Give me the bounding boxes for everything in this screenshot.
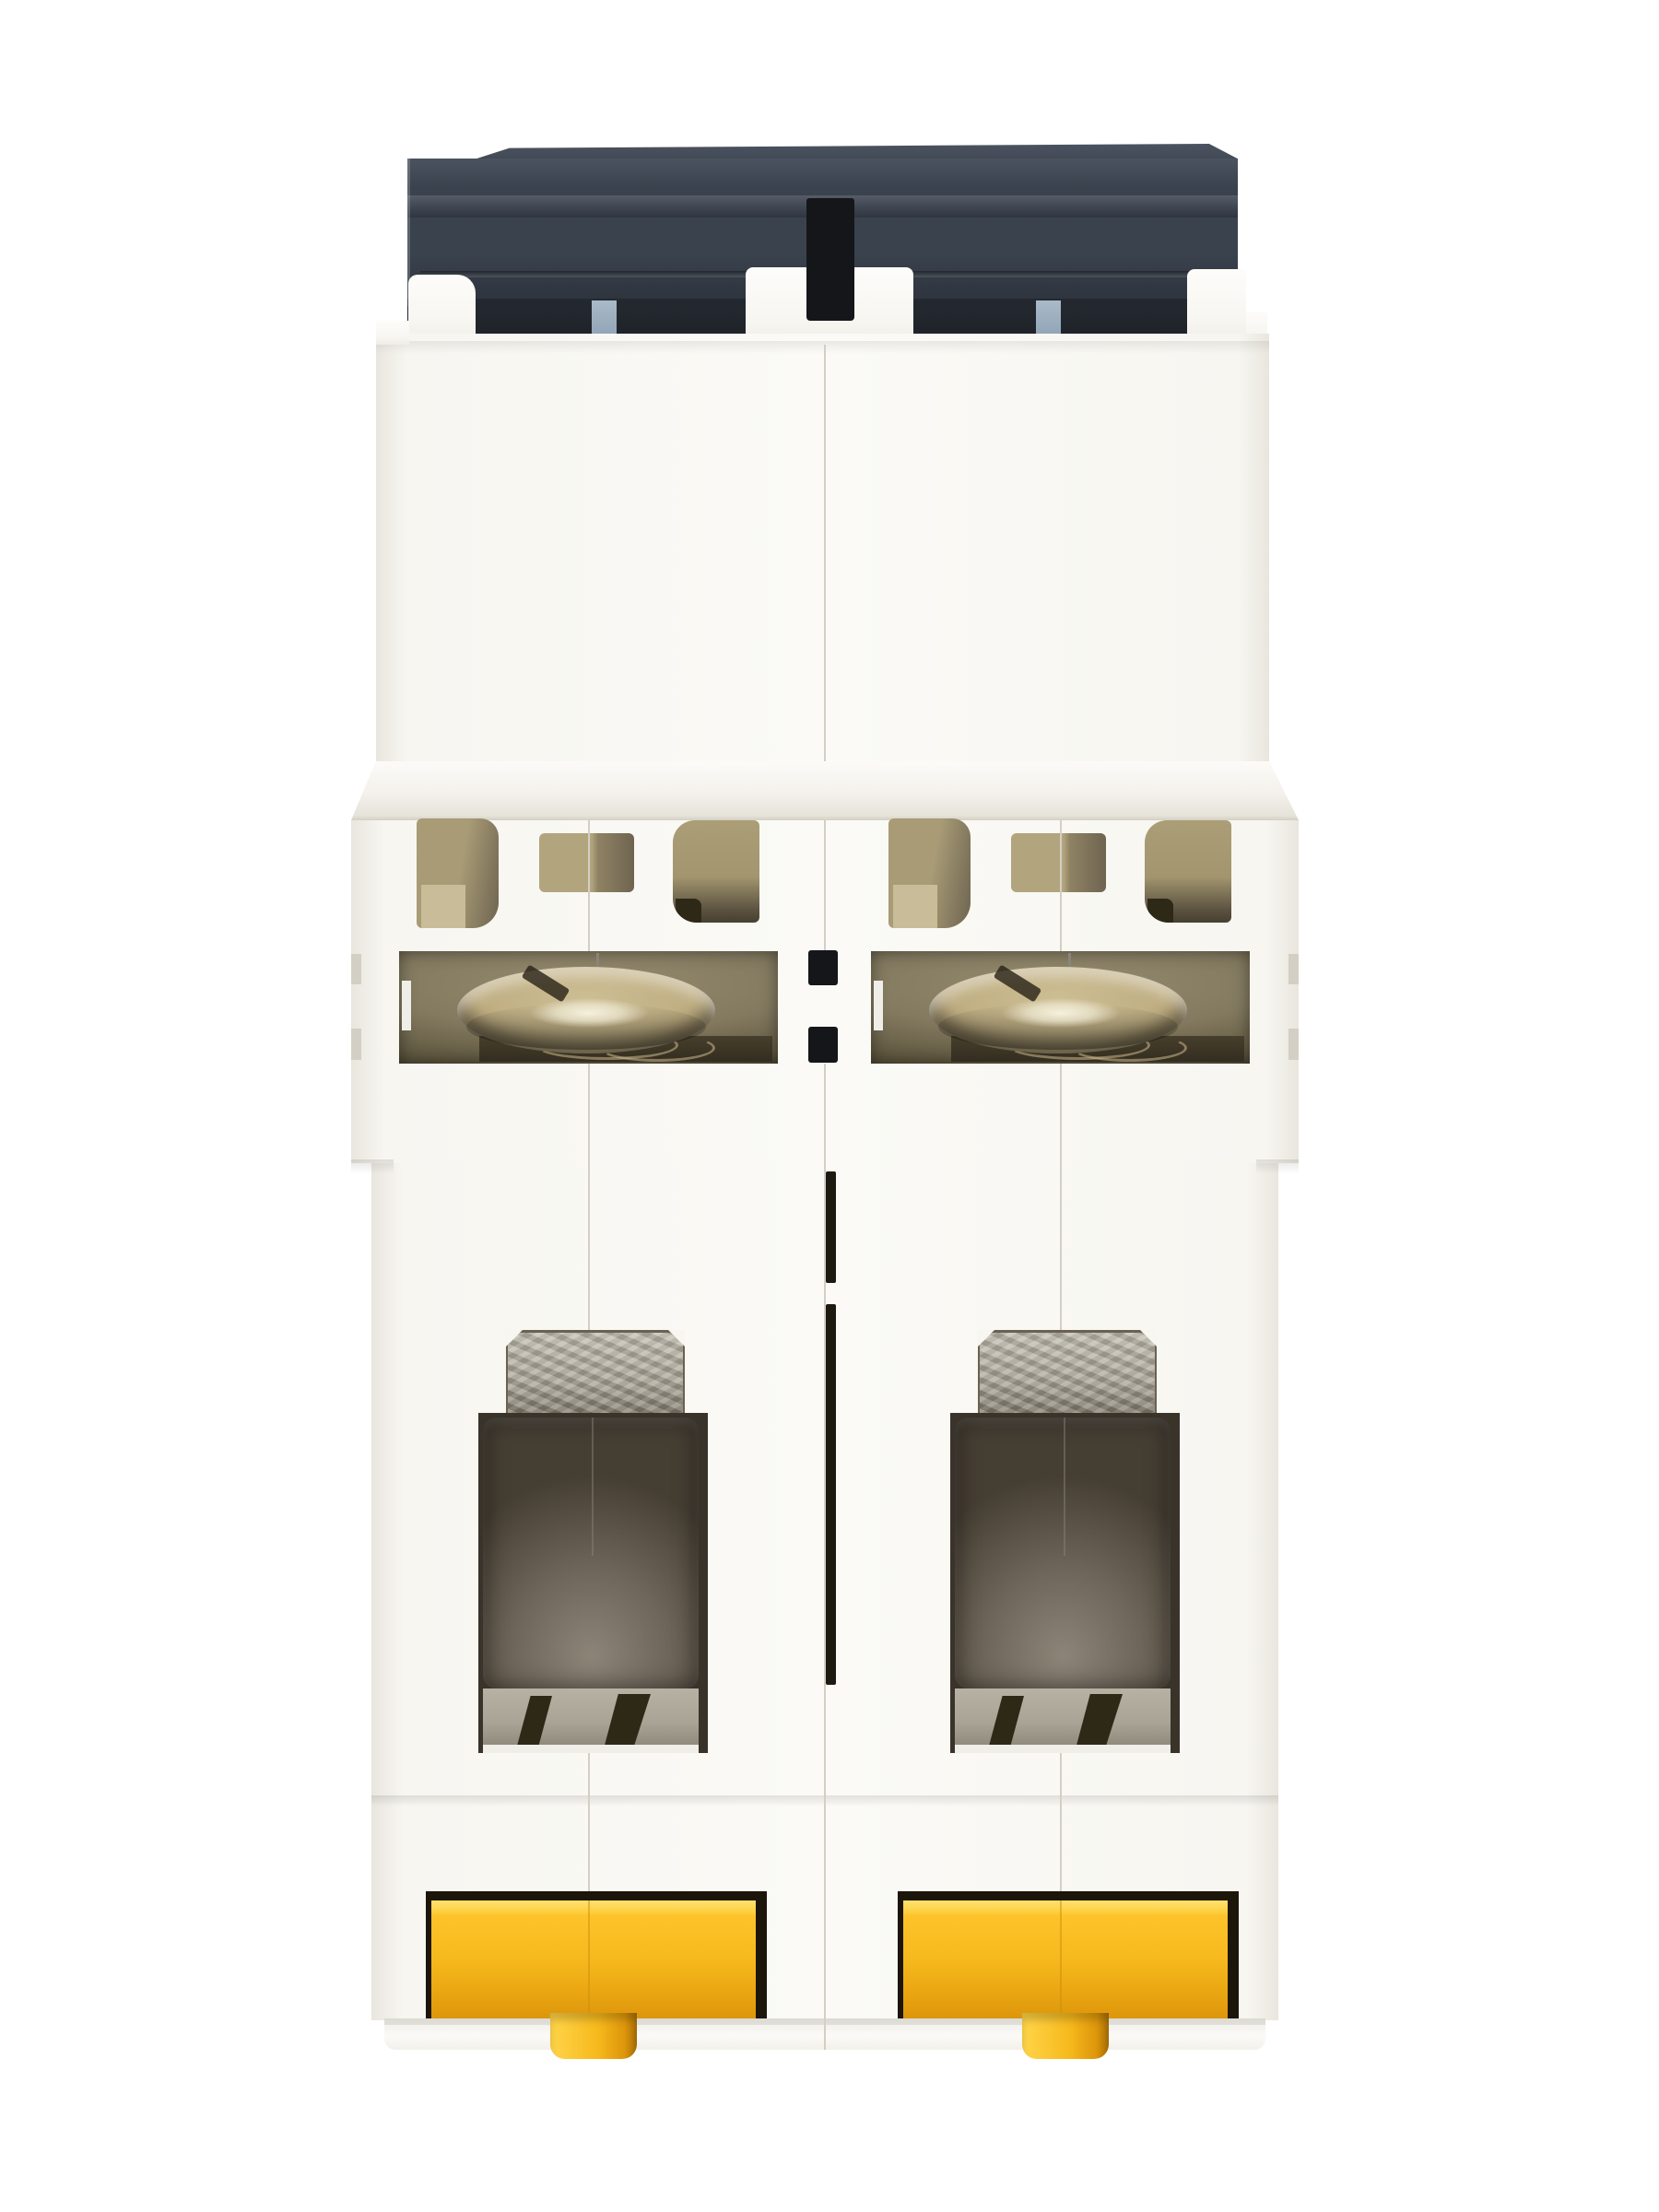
terminal-cage-right <box>950 1330 1180 1753</box>
cage-top-cutout <box>506 1330 685 1418</box>
clip-lip <box>431 1900 756 1915</box>
vent-opening <box>673 820 759 923</box>
vent-inner-highlight <box>893 885 937 928</box>
center-seam <box>824 1064 826 1163</box>
din-clip-right <box>903 1900 1228 2018</box>
module-seam-left <box>588 1064 590 1163</box>
cage-cavity <box>478 1413 708 1753</box>
clamp-gap <box>1064 1694 1123 1749</box>
clamp-jaw <box>955 1688 1171 1749</box>
circuit-breaker <box>0 0 1659 2212</box>
vent-inner-highlight <box>421 885 465 928</box>
module-seam-right <box>1060 820 1062 951</box>
clamp-jaw <box>483 1688 699 1749</box>
clip-seam <box>1060 1900 1062 2018</box>
corner-cut <box>1140 1330 1157 1347</box>
side-step-right <box>1256 1159 1299 1174</box>
center-seam-bottom <box>824 2018 826 2050</box>
smoked-window <box>483 1418 699 1688</box>
cage-bottom-gap <box>955 1745 1171 1753</box>
terminal-screw-left <box>457 967 715 1053</box>
vent-opening <box>417 818 499 928</box>
cage-top-cutout <box>978 1330 1157 1418</box>
center-slot-upper <box>808 950 838 985</box>
upper-body-left-ledge <box>376 321 409 345</box>
clamp-bar <box>980 1333 1155 1416</box>
screw-slot-mark <box>994 964 1042 1002</box>
edge-notch <box>351 1029 361 1060</box>
center-seam-upper <box>824 345 826 761</box>
toggle-slot-lower <box>806 258 854 321</box>
smoke-seam <box>1064 1418 1065 1556</box>
corner-cut <box>978 1330 994 1347</box>
center-seam <box>824 820 826 951</box>
smoke-seam <box>592 1418 594 1556</box>
clamp-gap <box>988 1696 1036 1749</box>
bottom-face <box>384 2018 1265 2050</box>
terminal-screw-right <box>929 967 1187 1053</box>
clip-pull-tab-right <box>1022 2013 1109 2059</box>
wall-notch <box>874 981 883 1030</box>
screw-slot-mark <box>522 964 571 1002</box>
shoulder-bevel <box>351 761 1299 820</box>
vent-opening <box>888 818 971 928</box>
center-gap-slot <box>826 1304 836 1685</box>
vent-opening <box>1011 833 1106 892</box>
center-gap-slot <box>826 1171 836 1283</box>
center-slot-lower <box>808 1027 838 1063</box>
upper-body <box>376 334 1269 761</box>
edge-notch <box>1288 1029 1299 1060</box>
edge-notch <box>1288 954 1299 984</box>
left-shoulder-tab <box>408 275 476 343</box>
terminal-window-right <box>871 951 1250 1064</box>
terminal-cage-left <box>478 1330 708 1753</box>
cage-bottom-gap <box>483 1745 699 1753</box>
terminal-window-left <box>399 951 778 1064</box>
screw-highlight <box>529 998 649 1028</box>
clip-pull-tab-left <box>550 2013 637 2059</box>
module-seam-left <box>588 820 590 951</box>
corner-cut <box>506 1330 523 1347</box>
smoked-window <box>955 1418 1171 1688</box>
edge-notch <box>351 954 361 984</box>
wall-notch <box>402 981 411 1030</box>
cage-cavity <box>950 1413 1180 1753</box>
vent-opening <box>1145 820 1231 923</box>
vent-opening <box>539 833 634 892</box>
side-step-left <box>351 1159 394 1174</box>
clamp-gap <box>592 1694 651 1749</box>
clip-lip <box>903 1900 1228 1915</box>
screw-highlight <box>1001 998 1121 1028</box>
upper-body-shadow <box>376 341 1269 354</box>
clamp-bar <box>508 1333 683 1416</box>
clamp-gap <box>516 1696 564 1749</box>
module-seam-right <box>1060 1064 1062 1163</box>
right-shoulder-tab <box>1187 269 1246 343</box>
din-clip-left <box>431 1900 756 2018</box>
corner-cut <box>668 1330 685 1347</box>
clip-seam <box>588 1900 590 2018</box>
product-photo <box>0 0 1659 2212</box>
